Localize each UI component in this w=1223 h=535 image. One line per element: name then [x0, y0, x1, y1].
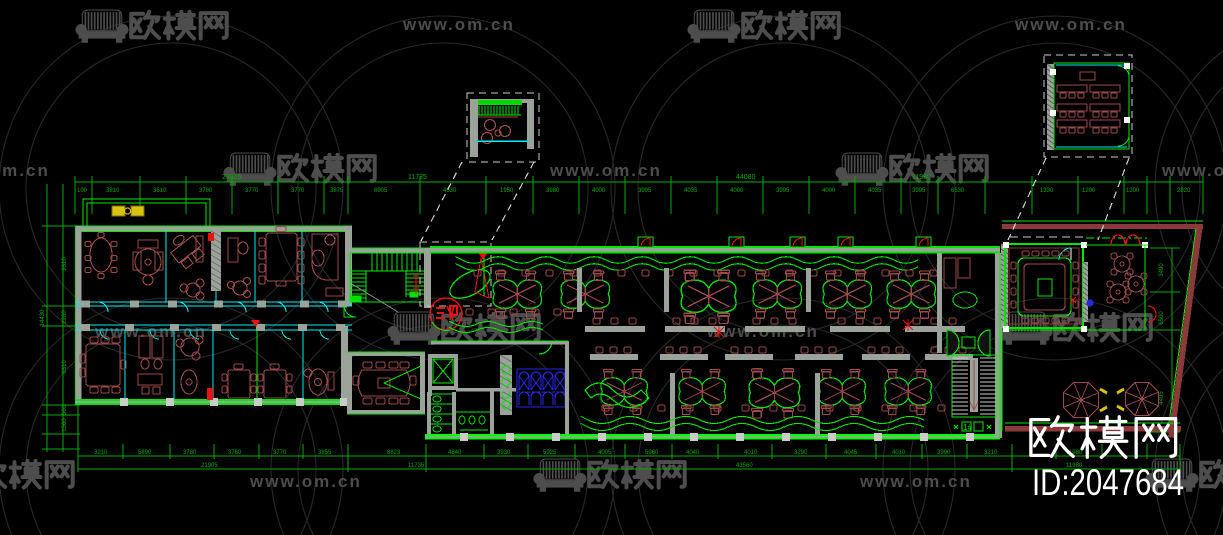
svg-text:3610: 3610: [153, 188, 167, 194]
svg-text:4035: 4035: [684, 188, 698, 194]
svg-text:11980: 11980: [912, 174, 931, 181]
svg-text:www.om.cn: www.om.cn: [402, 15, 515, 34]
svg-text:6310: 6310: [62, 360, 68, 374]
svg-text:www.om.cn: www.om.cn: [249, 472, 362, 491]
svg-text:3490: 3490: [1159, 263, 1165, 277]
svg-text:8823: 8823: [387, 450, 401, 456]
svg-text:1330: 1330: [1040, 188, 1054, 194]
svg-text:6530: 6530: [951, 188, 965, 194]
svg-text:6905: 6905: [374, 188, 388, 194]
svg-text:1560: 1560: [62, 418, 68, 432]
svg-text:11735: 11735: [408, 463, 425, 469]
svg-text:www.om.cn: www.om.cn: [0, 161, 50, 180]
svg-text:6500: 6500: [1159, 311, 1165, 325]
svg-text:44080: 44080: [736, 174, 756, 181]
svg-text:4000: 4000: [730, 188, 744, 194]
svg-text:3875: 3875: [330, 188, 344, 194]
svg-text:3210: 3210: [984, 450, 998, 456]
svg-text:3995: 3995: [912, 188, 926, 194]
svg-text:4040: 4040: [686, 450, 700, 456]
svg-text:4005: 4005: [598, 450, 612, 456]
svg-text:43560: 43560: [736, 463, 753, 469]
svg-text:9310: 9310: [62, 257, 68, 271]
svg-text:2200: 2200: [62, 310, 68, 324]
svg-text:3780: 3780: [199, 188, 213, 194]
svg-text:1200: 1200: [1126, 188, 1140, 194]
svg-text:4010: 4010: [744, 450, 758, 456]
svg-text:4495: 4495: [1159, 391, 1165, 405]
svg-text:ID:2047684: ID:2047684: [1032, 462, 1184, 503]
svg-text:1#: 1#: [963, 423, 972, 432]
svg-text:560: 560: [62, 404, 68, 415]
svg-text:www.om.cn: www.om.cn: [549, 161, 662, 180]
svg-text:3930: 3930: [497, 450, 511, 456]
svg-text:3780: 3780: [183, 450, 197, 456]
svg-text:3855: 3855: [318, 450, 332, 456]
svg-text:www.om.cn: www.om.cn: [859, 472, 972, 491]
svg-text:3770: 3770: [273, 450, 287, 456]
svg-text:4045: 4045: [844, 450, 858, 456]
svg-text:3995: 3995: [638, 188, 652, 194]
svg-text:3210: 3210: [94, 450, 108, 456]
svg-text:4630: 4630: [443, 188, 457, 194]
svg-text:21905: 21905: [201, 463, 218, 469]
svg-text:3770: 3770: [245, 188, 259, 194]
svg-text:5960: 5960: [645, 450, 659, 456]
svg-text:3990: 3990: [937, 450, 951, 456]
svg-text:11735: 11735: [408, 174, 427, 181]
svg-text:4000: 4000: [592, 188, 606, 194]
svg-text:3810: 3810: [106, 188, 120, 194]
svg-text:4035: 4035: [868, 188, 882, 194]
svg-text:14430: 14430: [40, 309, 46, 326]
svg-text:1950: 1950: [500, 188, 514, 194]
svg-text:4000: 4000: [822, 188, 836, 194]
svg-text:3290: 3290: [794, 450, 808, 456]
svg-text:www.om.cn: www.om.cn: [1014, 15, 1127, 34]
svg-text:4010: 4010: [892, 450, 906, 456]
svg-text:2820: 2820: [1177, 188, 1191, 194]
svg-text:23025: 23025: [222, 174, 242, 181]
svg-text:5890: 5890: [138, 450, 152, 456]
svg-text:5925: 5925: [543, 450, 557, 456]
svg-text:1200: 1200: [1082, 188, 1096, 194]
svg-text:3770: 3770: [291, 188, 305, 194]
svg-text:4840: 4840: [448, 450, 462, 456]
svg-text:3980: 3980: [546, 188, 560, 194]
svg-text:3995: 3995: [776, 188, 790, 194]
svg-text:100: 100: [77, 188, 88, 194]
svg-text:3760: 3760: [228, 450, 242, 456]
